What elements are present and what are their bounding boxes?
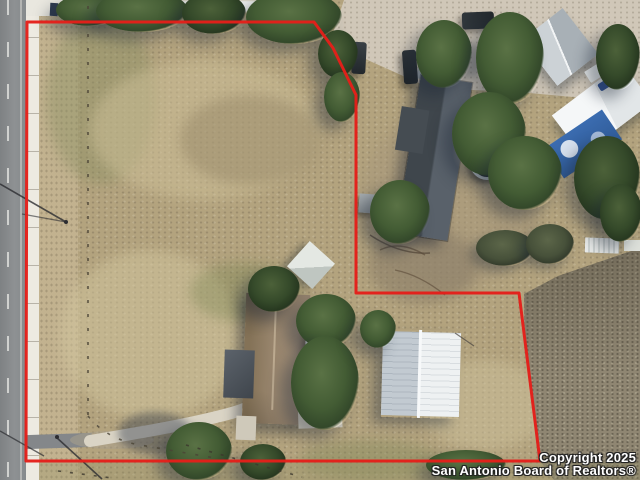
overlay-lines	[0, 0, 640, 480]
south-fence-line	[58, 471, 112, 478]
fence-curve	[88, 416, 232, 461]
utility-pole	[64, 220, 68, 224]
boundary-line	[26, 22, 540, 461]
aerial-photo: Copyright 2025 San Antonio Board of Real…	[0, 0, 640, 480]
guy-wire	[455, 333, 474, 346]
utility-pole	[55, 435, 59, 439]
copyright-watermark: Copyright 2025 San Antonio Board of Real…	[432, 451, 636, 478]
copyright-line2: San Antonio Board of Realtors®	[432, 464, 636, 478]
powerline-shadow	[0, 431, 44, 456]
powerline-shadow	[56, 437, 102, 479]
